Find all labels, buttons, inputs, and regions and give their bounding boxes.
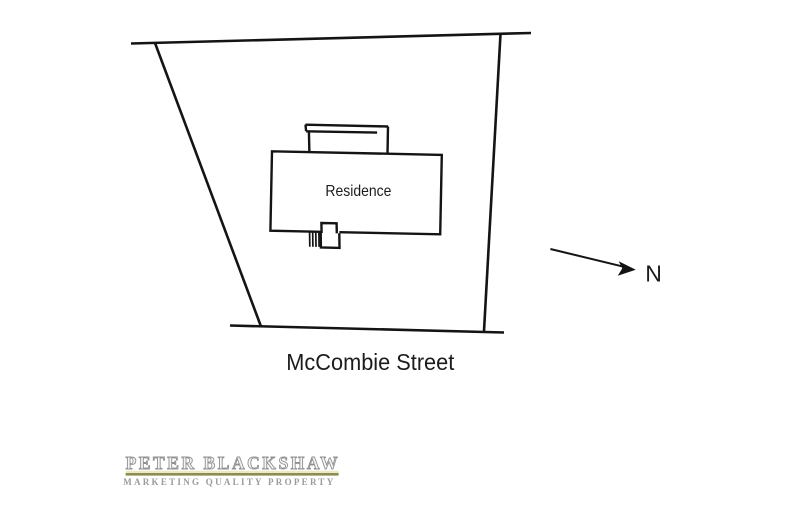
svg-text:McCombie Street: McCombie Street <box>286 349 454 375</box>
svg-text:PETER BLACKSHAW: PETER BLACKSHAW <box>126 453 339 473</box>
svg-text:MARKETING QUALITY PROPERTY: MARKETING QUALITY PROPERTY <box>123 477 334 487</box>
svg-text:N: N <box>645 261 662 287</box>
svg-text:Residence: Residence <box>325 183 391 200</box>
